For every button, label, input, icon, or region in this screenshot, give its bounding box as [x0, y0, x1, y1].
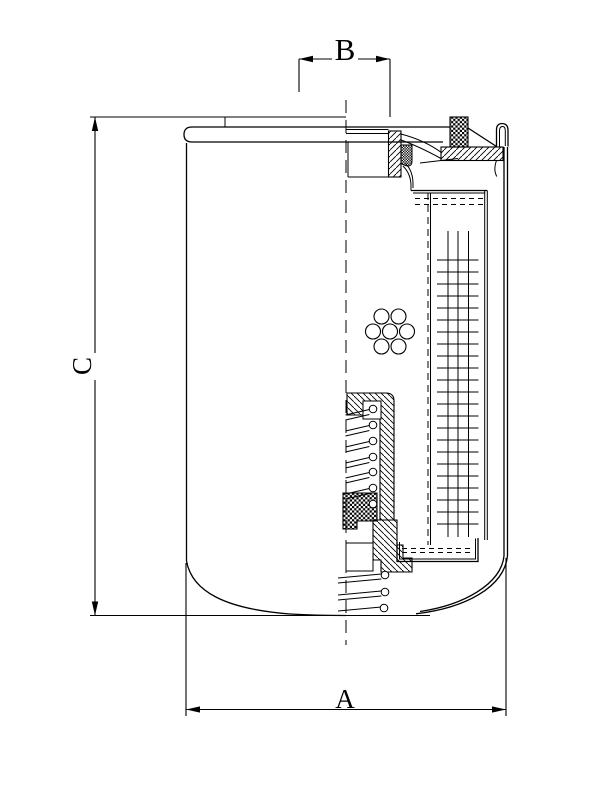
spring-plate: [346, 543, 373, 571]
technical-drawing: B C A: [0, 0, 612, 792]
thread-boss: [389, 131, 402, 177]
retainer-plate: [441, 147, 503, 161]
background: [0, 0, 612, 792]
dimension-b-label: B: [335, 32, 356, 67]
anti-drainback-valve: [401, 145, 412, 166]
dimension-c-label: C: [67, 357, 97, 375]
seal-gasket: [450, 117, 468, 147]
dimension-a-label: A: [335, 684, 355, 714]
drawing-page: B C A: [0, 0, 612, 792]
